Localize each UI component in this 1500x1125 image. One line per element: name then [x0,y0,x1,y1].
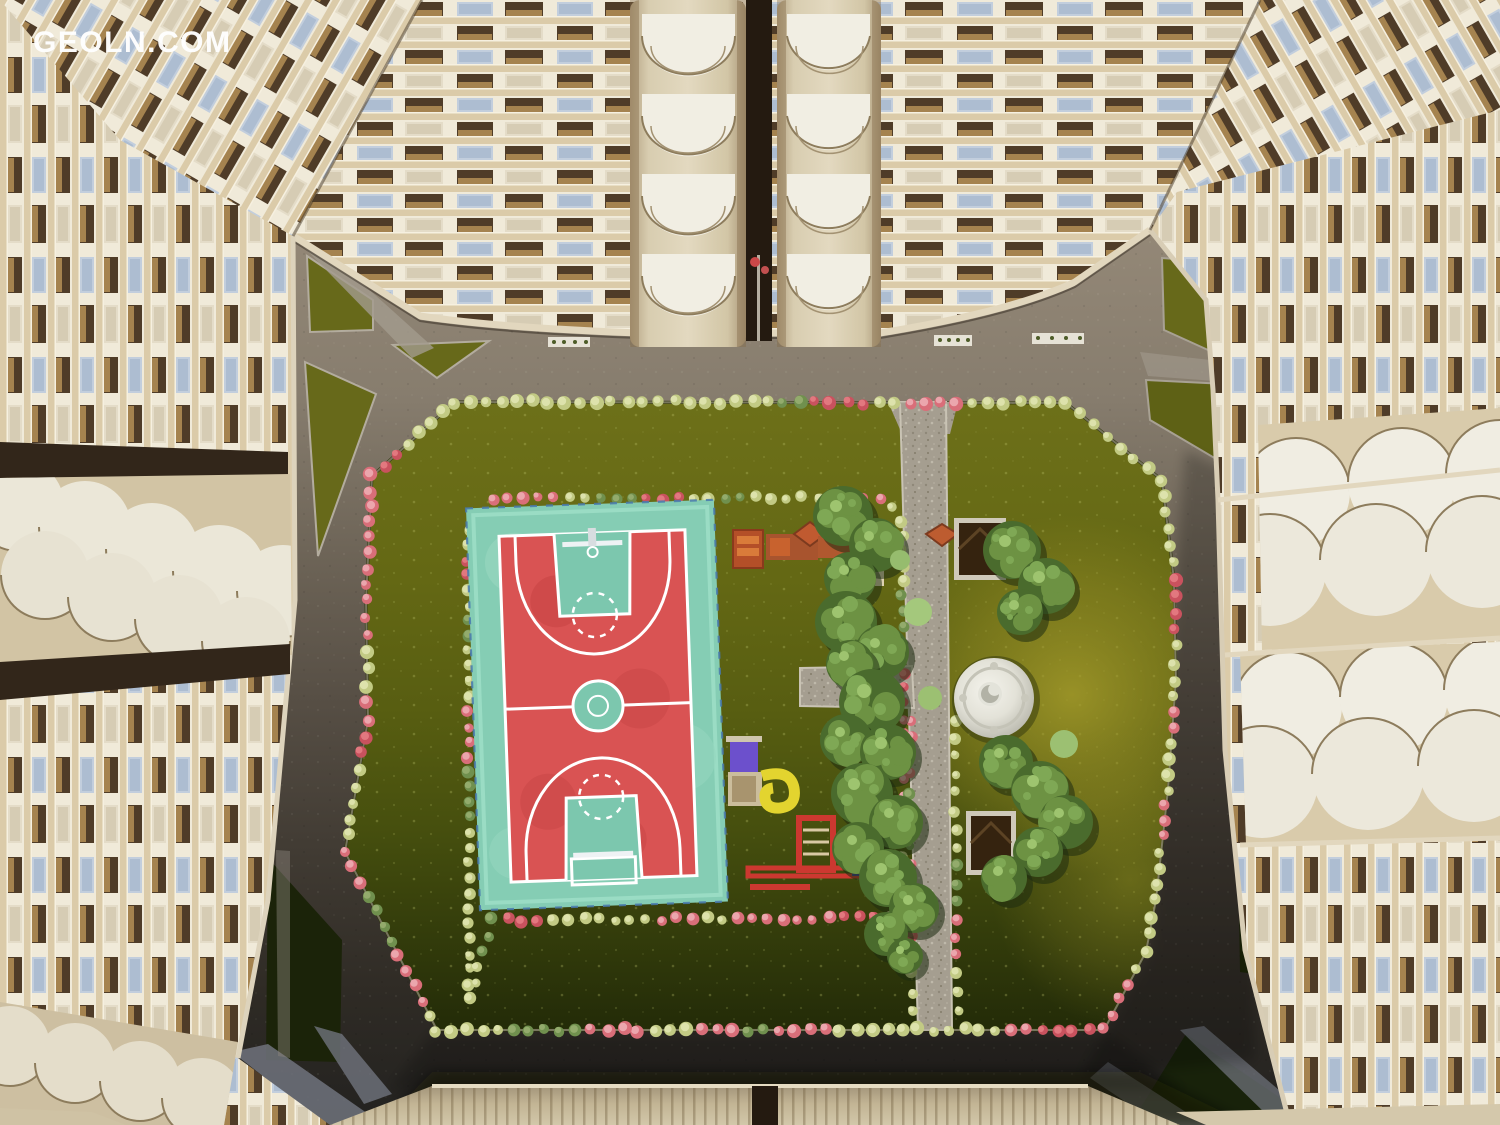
svg-text:GEOLN.COM: GEOLN.COM [33,26,232,59]
